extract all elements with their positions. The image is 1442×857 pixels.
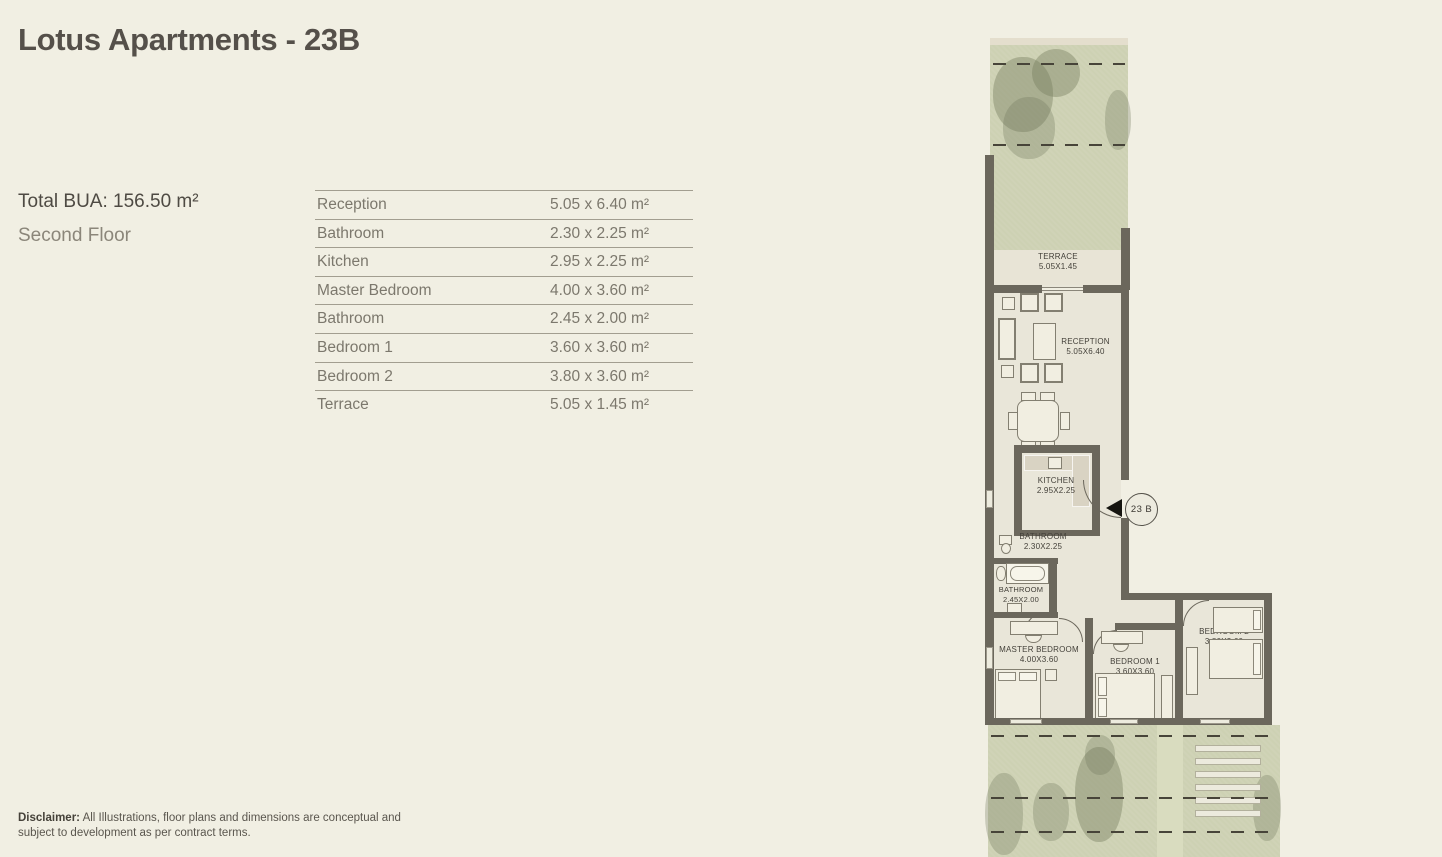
total-bua: Total BUA: 156.50 m²: [18, 191, 199, 213]
room-dimensions: 2.30 x 2.25 m²: [550, 225, 649, 243]
dining-chair: [1060, 412, 1070, 430]
pergola-slat: [1195, 745, 1261, 752]
tree: [1085, 735, 1115, 775]
wall: [1121, 593, 1272, 600]
table-row: Master Bedroom 4.00 x 3.60 m²: [315, 276, 693, 305]
room-name: Bedroom 2: [317, 368, 393, 386]
pergola-slat: [1195, 784, 1261, 791]
nightstand: [1045, 669, 1057, 681]
wardrobe: [1186, 647, 1198, 695]
entrance-arrow-icon: [1106, 499, 1122, 517]
wall: [1264, 600, 1272, 725]
room-dimensions: 3.60 x 3.60 m²: [550, 339, 649, 357]
sofa: [998, 318, 1016, 360]
side-table: [1001, 365, 1014, 378]
armchair: [1044, 363, 1063, 383]
pillow: [1098, 677, 1107, 696]
bathtub: [1010, 566, 1045, 581]
room-name: Reception: [317, 196, 387, 214]
armchair: [1020, 293, 1039, 312]
table-row: Bathroom 2.45 x 2.00 m²: [315, 304, 693, 333]
window-opening: [1200, 719, 1230, 724]
table-row: Bathroom 2.30 x 2.25 m²: [315, 219, 693, 248]
table-row: Reception 5.05 x 6.40 m²: [315, 190, 693, 219]
wall: [1085, 618, 1093, 725]
room-label-bathroom-2: BATHROOM 2.45X2.00: [993, 585, 1049, 605]
brochure-page: Lotus Apartments - 23B Total BUA: 156.50…: [0, 0, 1442, 857]
wall: [1121, 228, 1130, 290]
pergola-slat: [1195, 771, 1261, 778]
dashed-setback-line: [991, 831, 1277, 833]
coffee-table: [1033, 323, 1056, 360]
dashed-setback-line: [991, 735, 1277, 737]
table-row: Kitchen 2.95 x 2.25 m²: [315, 247, 693, 276]
window-opening: [1042, 287, 1083, 291]
pergola-slat: [1195, 758, 1261, 765]
room-name: Bedroom 1: [317, 339, 393, 357]
room-name: Terrace: [317, 396, 369, 414]
room-dimensions: 5.05 x 6.40 m²: [550, 196, 649, 214]
unit-badge: 23 B: [1125, 493, 1158, 526]
wall: [1121, 290, 1129, 480]
wall: [1014, 445, 1100, 453]
room-dimensions: 4.00 x 3.60 m²: [550, 282, 649, 300]
dining-chair: [1008, 412, 1018, 430]
pillow: [1253, 643, 1261, 675]
tree: [1032, 49, 1080, 97]
room-name: Master Bedroom: [317, 282, 432, 300]
room-dimensions: 2.45 x 2.00 m²: [550, 310, 649, 328]
wall: [1115, 623, 1177, 630]
wall: [994, 612, 1058, 618]
dresser: [1010, 621, 1058, 635]
dining-table: [1017, 400, 1059, 442]
wall: [1175, 600, 1183, 725]
room-label-terrace: TERRACE 5.05X1.45: [1023, 252, 1093, 273]
disclaimer: Disclaimer: All Illustrations, floor pla…: [18, 811, 418, 840]
table-row: Terrace 5.05 x 1.45 m²: [315, 390, 693, 419]
dashed-setback-line: [993, 63, 1125, 65]
dresser: [1101, 631, 1143, 644]
room-dimensions: 2.95 x 2.25 m²: [550, 253, 649, 271]
page-title: Lotus Apartments - 23B: [18, 22, 360, 58]
wall: [994, 285, 1042, 293]
toilet: [996, 566, 1006, 581]
wardrobe: [1161, 675, 1173, 719]
window-opening: [986, 647, 993, 669]
wall: [1083, 285, 1121, 293]
room-label-bathroom-1: BATHROOM 2.30X2.25: [1003, 532, 1083, 553]
dimensions-table: Reception 5.05 x 6.40 m² Bathroom 2.30 x…: [315, 190, 693, 419]
stove: [1048, 457, 1062, 469]
room-name: Bathroom: [317, 310, 384, 328]
pillow: [998, 672, 1016, 681]
tree: [985, 773, 1023, 855]
tree: [1003, 97, 1055, 159]
wall: [1121, 518, 1129, 600]
room-dimensions: 3.80 x 3.60 m²: [550, 368, 649, 386]
room-name: Kitchen: [317, 253, 369, 271]
floor-label: Second Floor: [18, 225, 131, 247]
wall: [1049, 558, 1057, 618]
room-name: Bathroom: [317, 225, 384, 243]
garden-path: [1157, 725, 1183, 857]
side-table: [1002, 297, 1015, 310]
pergola-slat: [1195, 810, 1261, 817]
wall: [985, 155, 994, 725]
pillow: [1019, 672, 1037, 681]
wall: [1014, 453, 1022, 530]
tree: [1105, 90, 1131, 150]
window-opening: [1010, 719, 1042, 724]
floor-plan: TERRACE 5.05X1.45 RECEPTION 5.05X6.40: [985, 35, 1285, 857]
table-row: Bedroom 1 3.60 x 3.60 m²: [315, 333, 693, 362]
dashed-setback-line: [991, 797, 1277, 799]
pillow: [1253, 610, 1261, 630]
room-dimensions: 5.05 x 1.45 m²: [550, 396, 649, 414]
window-opening: [1110, 719, 1138, 724]
pillow: [1098, 698, 1107, 717]
table-row: Bedroom 2 3.80 x 3.60 m²: [315, 362, 693, 391]
dashed-setback-line: [993, 144, 1125, 146]
disclaimer-label: Disclaimer:: [18, 812, 80, 824]
armchair: [1020, 363, 1039, 383]
room-label-master-bedroom: MASTER BEDROOM 4.00X3.60: [993, 645, 1085, 666]
room-label-kitchen: KITCHEN 2.95X2.25: [1024, 476, 1088, 497]
armchair: [1044, 293, 1063, 312]
window-opening: [986, 490, 993, 508]
